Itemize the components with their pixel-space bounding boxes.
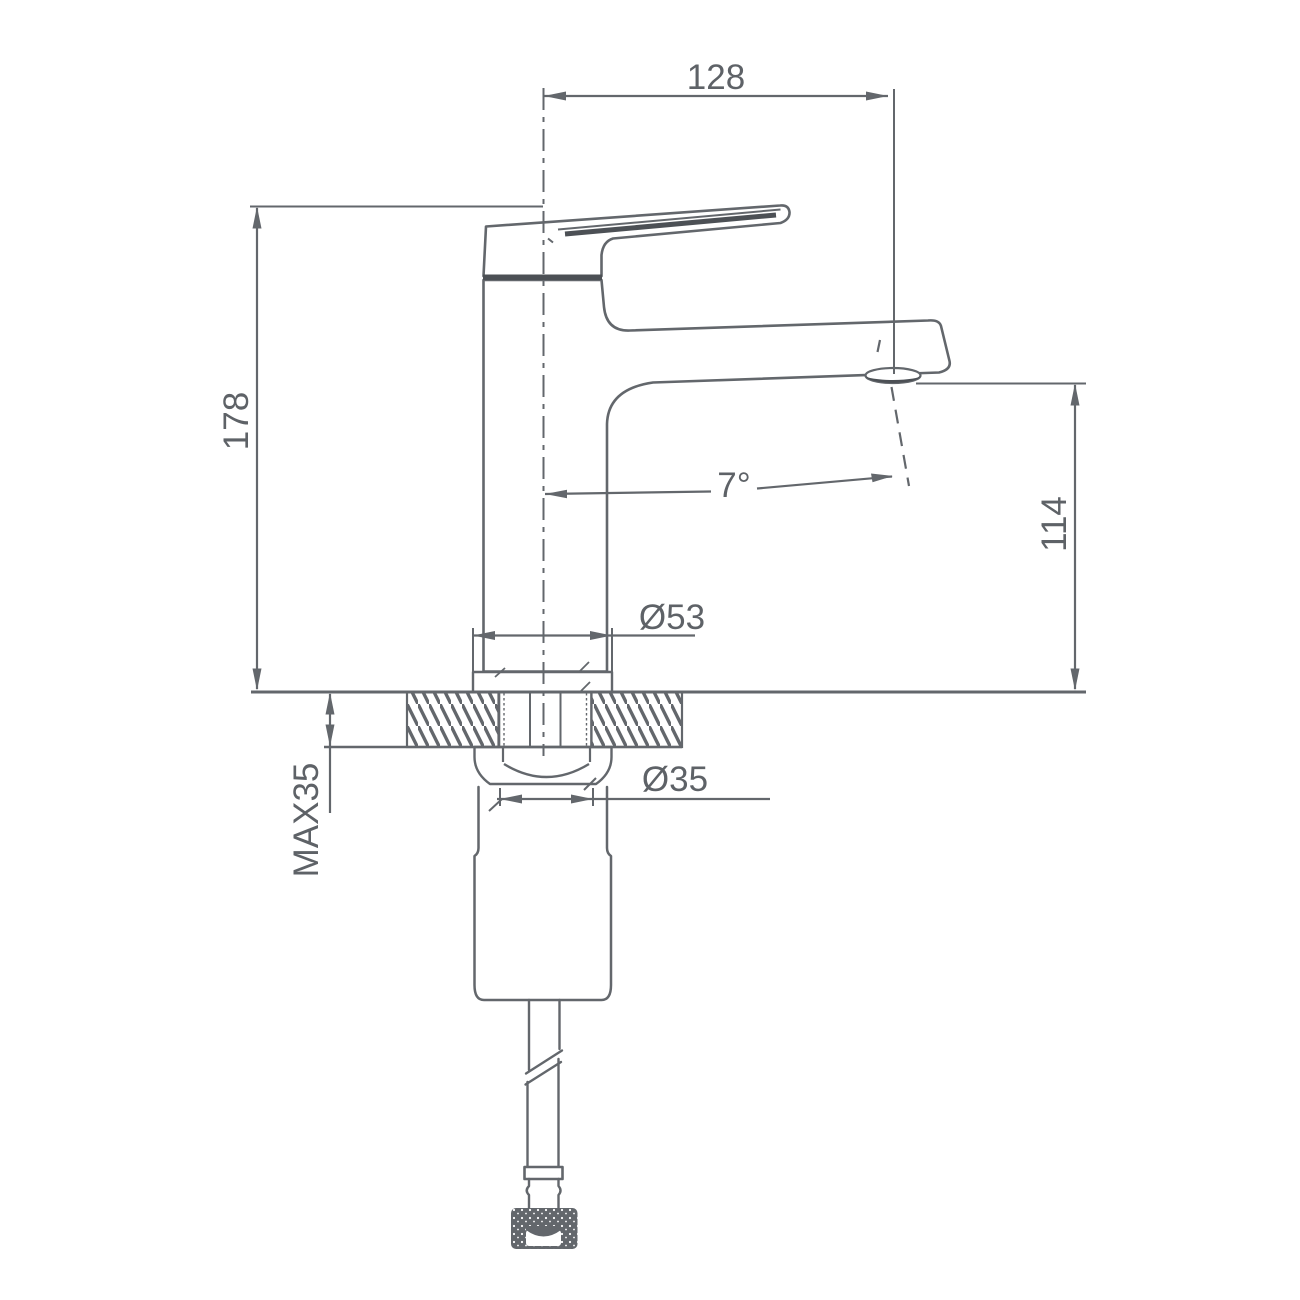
spray-direction-line <box>892 387 910 486</box>
label-max-deck-thickness: MAX35 <box>287 763 326 878</box>
hose-collar <box>525 1167 563 1179</box>
label-total-height: 178 <box>217 392 256 450</box>
label-spout-height: 114 <box>1035 496 1074 552</box>
label-spout-width: 128 <box>687 58 745 97</box>
dimension-max-deck-thickness <box>326 693 335 814</box>
handle-base-band <box>483 275 602 281</box>
label-spout-angle: 7° <box>717 466 750 505</box>
countertop-section <box>251 662 1086 747</box>
label-mount-hole-diameter: Ø35 <box>642 760 708 799</box>
under-counter-body <box>475 787 612 1000</box>
label-base-diameter: Ø53 <box>639 598 705 637</box>
drawing-sheet: 128 178 7° 114 Ø53 Ø35 MAX35 <box>0 0 1300 1300</box>
supply-hose <box>526 1000 563 1167</box>
faucet-technical-drawing: 128 178 7° 114 Ø53 Ø35 MAX35 <box>0 0 1300 1300</box>
hose-nut-knurled <box>511 1208 578 1249</box>
hose-connector <box>527 1179 561 1208</box>
